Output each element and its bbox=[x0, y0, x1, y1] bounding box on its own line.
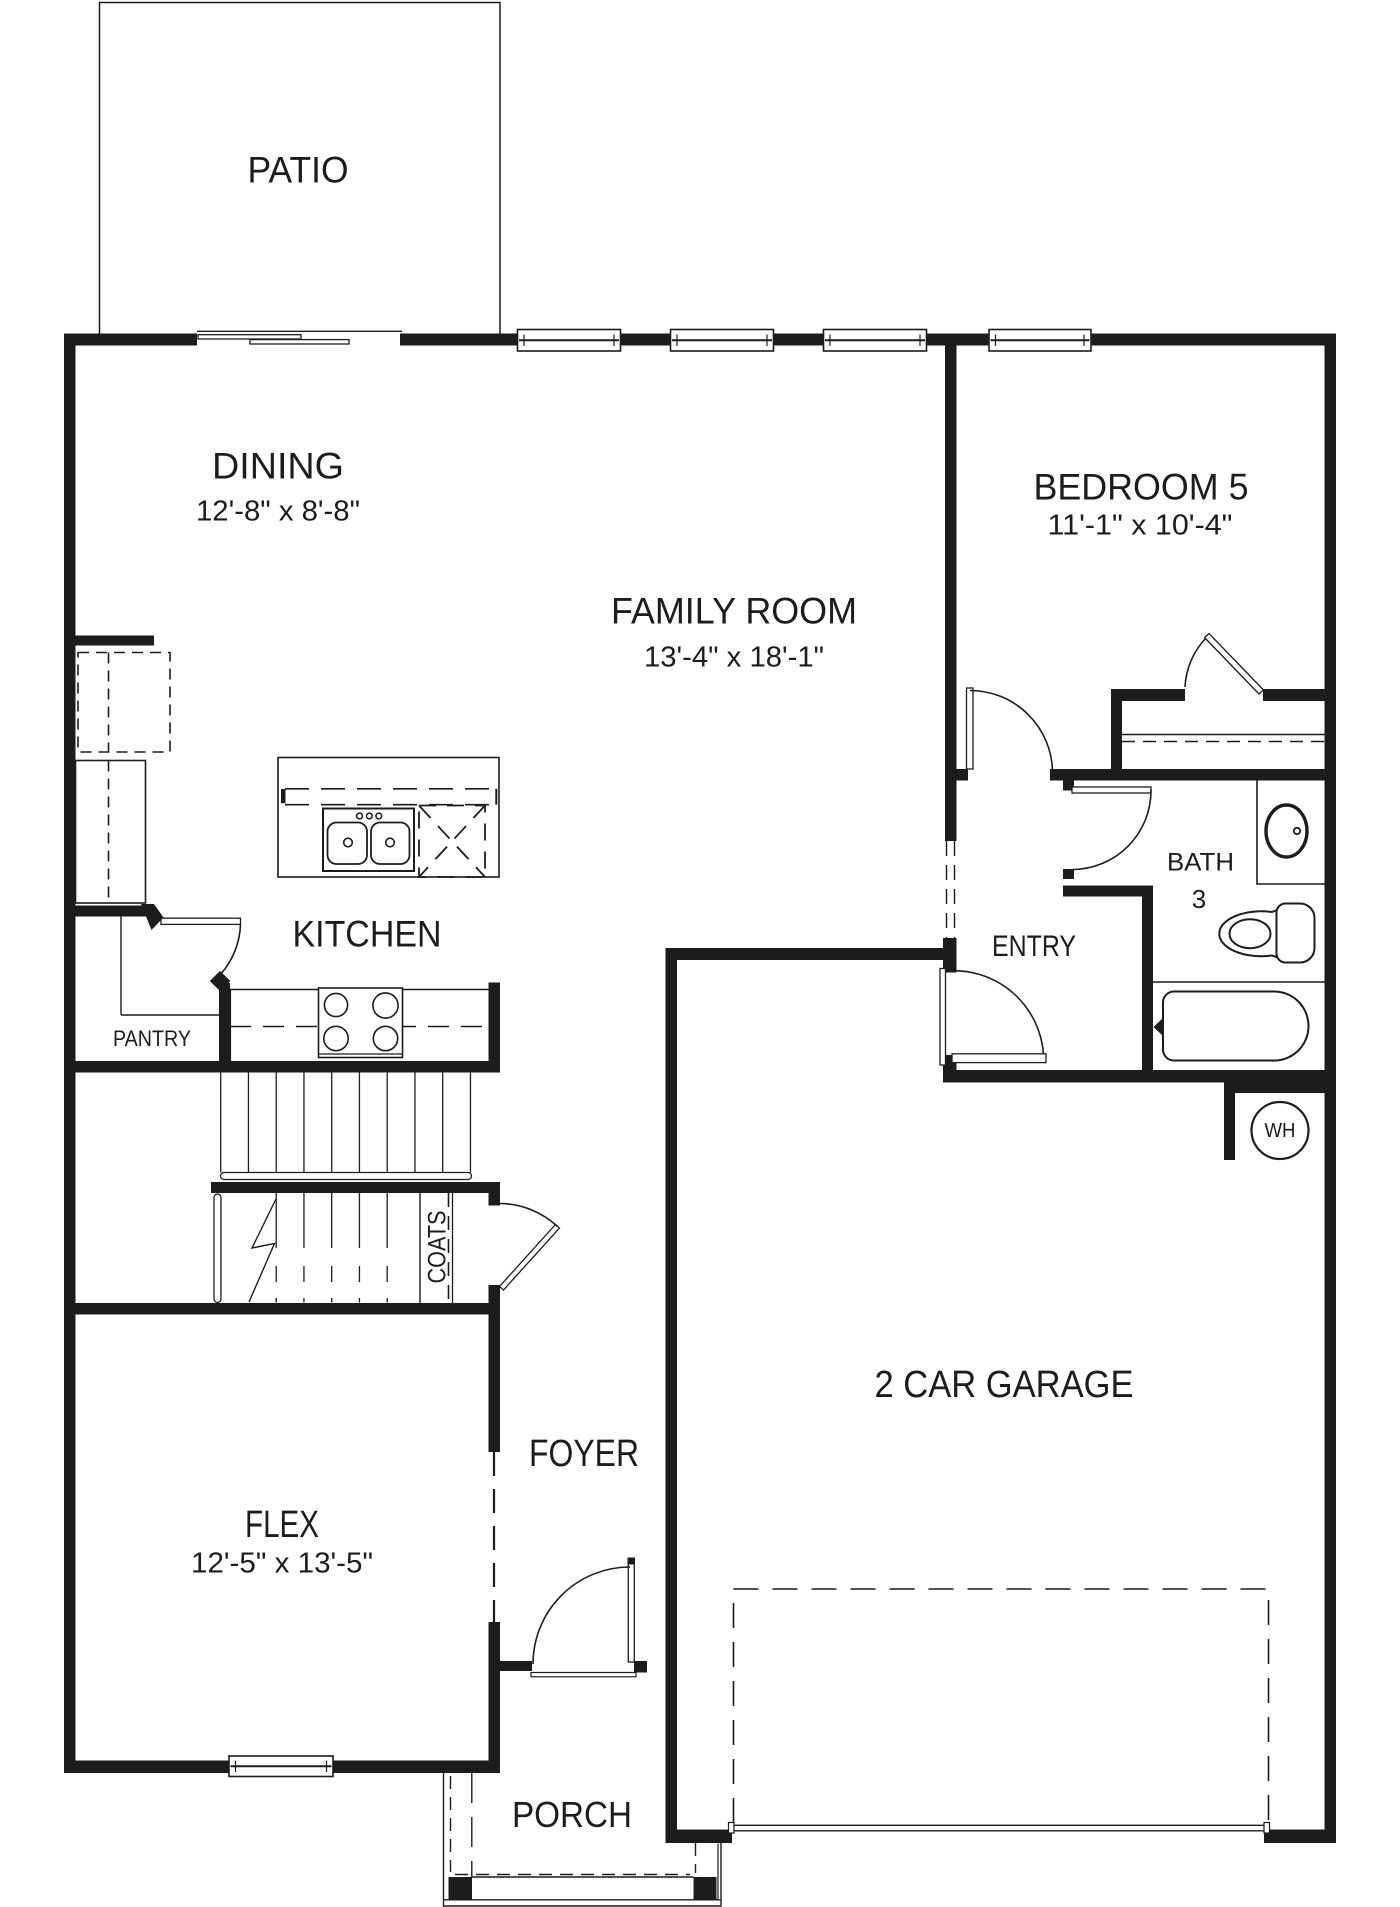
svg-text:3: 3 bbox=[1192, 884, 1206, 914]
svg-text:FOYER: FOYER bbox=[529, 1433, 639, 1475]
svg-text:11'-1" x 10'-4": 11'-1" x 10'-4" bbox=[1048, 510, 1233, 542]
svg-text:BEDROOM 5: BEDROOM 5 bbox=[1034, 467, 1249, 508]
svg-text:BATH: BATH bbox=[1167, 849, 1234, 877]
svg-text:2 CAR GARAGE: 2 CAR GARAGE bbox=[875, 1364, 1134, 1406]
svg-text:FAMILY ROOM: FAMILY ROOM bbox=[611, 591, 857, 632]
svg-text:ENTRY: ENTRY bbox=[992, 930, 1076, 963]
svg-text:13'-4" x 18'-1": 13'-4" x 18'-1" bbox=[644, 642, 824, 674]
svg-text:PANTRY: PANTRY bbox=[113, 1026, 191, 1051]
svg-text:DINING: DINING bbox=[212, 446, 344, 487]
svg-text:PATIO: PATIO bbox=[248, 150, 349, 191]
svg-text:PORCH: PORCH bbox=[512, 1794, 632, 1835]
svg-text:KITCHEN: KITCHEN bbox=[293, 914, 442, 955]
svg-text:WH: WH bbox=[1265, 1120, 1296, 1142]
svg-text:COATS: COATS bbox=[424, 1211, 452, 1284]
svg-text:12'-5" x 13'-5": 12'-5" x 13'-5" bbox=[191, 1548, 373, 1580]
svg-text:12'-8" x 8'-8": 12'-8" x 8'-8" bbox=[196, 496, 360, 528]
svg-text:FLEX: FLEX bbox=[245, 1504, 319, 1546]
